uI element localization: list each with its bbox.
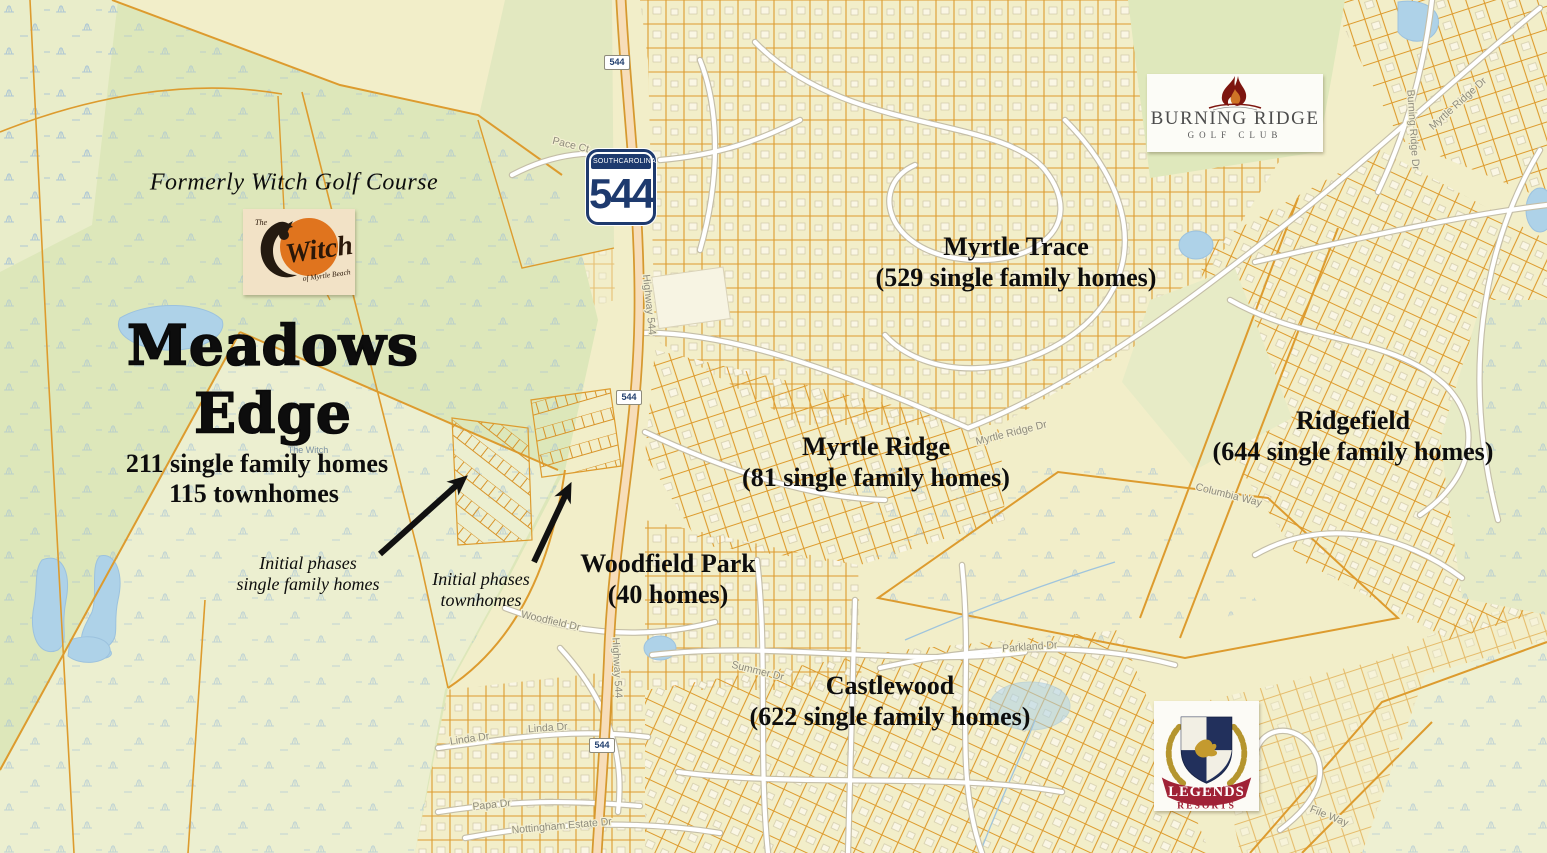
route-marker-544: 544 xyxy=(589,738,615,753)
meadows-edge-title-line2: Edge xyxy=(194,381,352,446)
initial-phases-th-line2: townhomes xyxy=(432,590,530,611)
burning-ridge-sub: GOLF CLUB xyxy=(1147,130,1323,140)
shield-state-right: CAROLINA xyxy=(619,158,656,165)
flame-icon xyxy=(1207,75,1263,111)
community-label-woodfield-park: Woodfield Park (40 homes) xyxy=(580,548,756,610)
burning-ridge-logo: BURNING RIDGE GOLF CLUB xyxy=(1147,74,1323,152)
formerly-witch-label: Formerly Witch Golf Course xyxy=(150,170,438,197)
witch-logo-art: Witch The of Myrtle Beach xyxy=(243,209,355,295)
community-label-myrtle-trace: Myrtle Trace (529 single family homes) xyxy=(876,231,1157,293)
shield-number: 544 xyxy=(589,169,653,219)
community-label-ridgefield: Ridgefield (644 single family homes) xyxy=(1213,405,1494,467)
community-detail: (529 single family homes) xyxy=(876,262,1157,293)
community-name: Castlewood xyxy=(750,670,1031,701)
initial-phases-sf-line2: single family homes xyxy=(237,574,380,595)
initial-phases-sf-line1: Initial phases xyxy=(237,553,380,574)
legends-name: LEGENDS xyxy=(1168,784,1244,800)
community-name: Woodfield Park xyxy=(580,548,756,579)
witch-golf-logo: Witch The of Myrtle Beach xyxy=(243,209,355,295)
community-name: Myrtle Ridge xyxy=(742,431,1010,462)
meadows-edge-stat-th: 115 townhomes xyxy=(169,479,339,509)
initial-phases-sf-note: Initial phases single family homes xyxy=(237,553,380,595)
route-marker-544: 544 xyxy=(604,55,630,70)
community-name: Ridgefield xyxy=(1213,405,1494,436)
community-detail: (644 single family homes) xyxy=(1213,436,1494,467)
legends-sub: RESORTS xyxy=(1177,801,1236,812)
legends-logo-art: LEGENDS RESORTS xyxy=(1154,701,1259,811)
building-footprint xyxy=(652,267,731,329)
shield-state-left: SOUTH xyxy=(593,158,619,165)
community-detail: (622 single family homes) xyxy=(750,701,1031,732)
burning-ridge-name: BURNING RIDGE xyxy=(1147,109,1323,128)
meadows-edge-stat-sf: 211 single family homes xyxy=(126,449,388,479)
community-detail: (40 homes) xyxy=(580,579,756,610)
sc-544-highway-shield: SOUTH CAROLINA 544 xyxy=(586,149,656,225)
community-label-castlewood: Castlewood (622 single family homes) xyxy=(750,670,1031,732)
community-label-myrtle-ridge: Myrtle Ridge (81 single family homes) xyxy=(742,431,1010,493)
legends-resorts-logo: LEGENDS RESORTS xyxy=(1154,701,1259,811)
witch-logo-prefix: The xyxy=(255,218,267,227)
community-detail: (81 single family homes) xyxy=(742,462,1010,493)
shield-state-band: SOUTH CAROLINA xyxy=(591,154,651,169)
initial-phases-th-note: Initial phases townhomes xyxy=(432,569,530,611)
initial-phases-th-line1: Initial phases xyxy=(432,569,530,590)
route-marker-544: 544 xyxy=(616,390,642,405)
meadows-edge-title-line1: Meadows xyxy=(127,313,419,378)
community-name: Myrtle Trace xyxy=(876,231,1157,262)
map-stage: Highway 544 Highway 544 Myrtle Ridge Dr … xyxy=(0,0,1547,853)
